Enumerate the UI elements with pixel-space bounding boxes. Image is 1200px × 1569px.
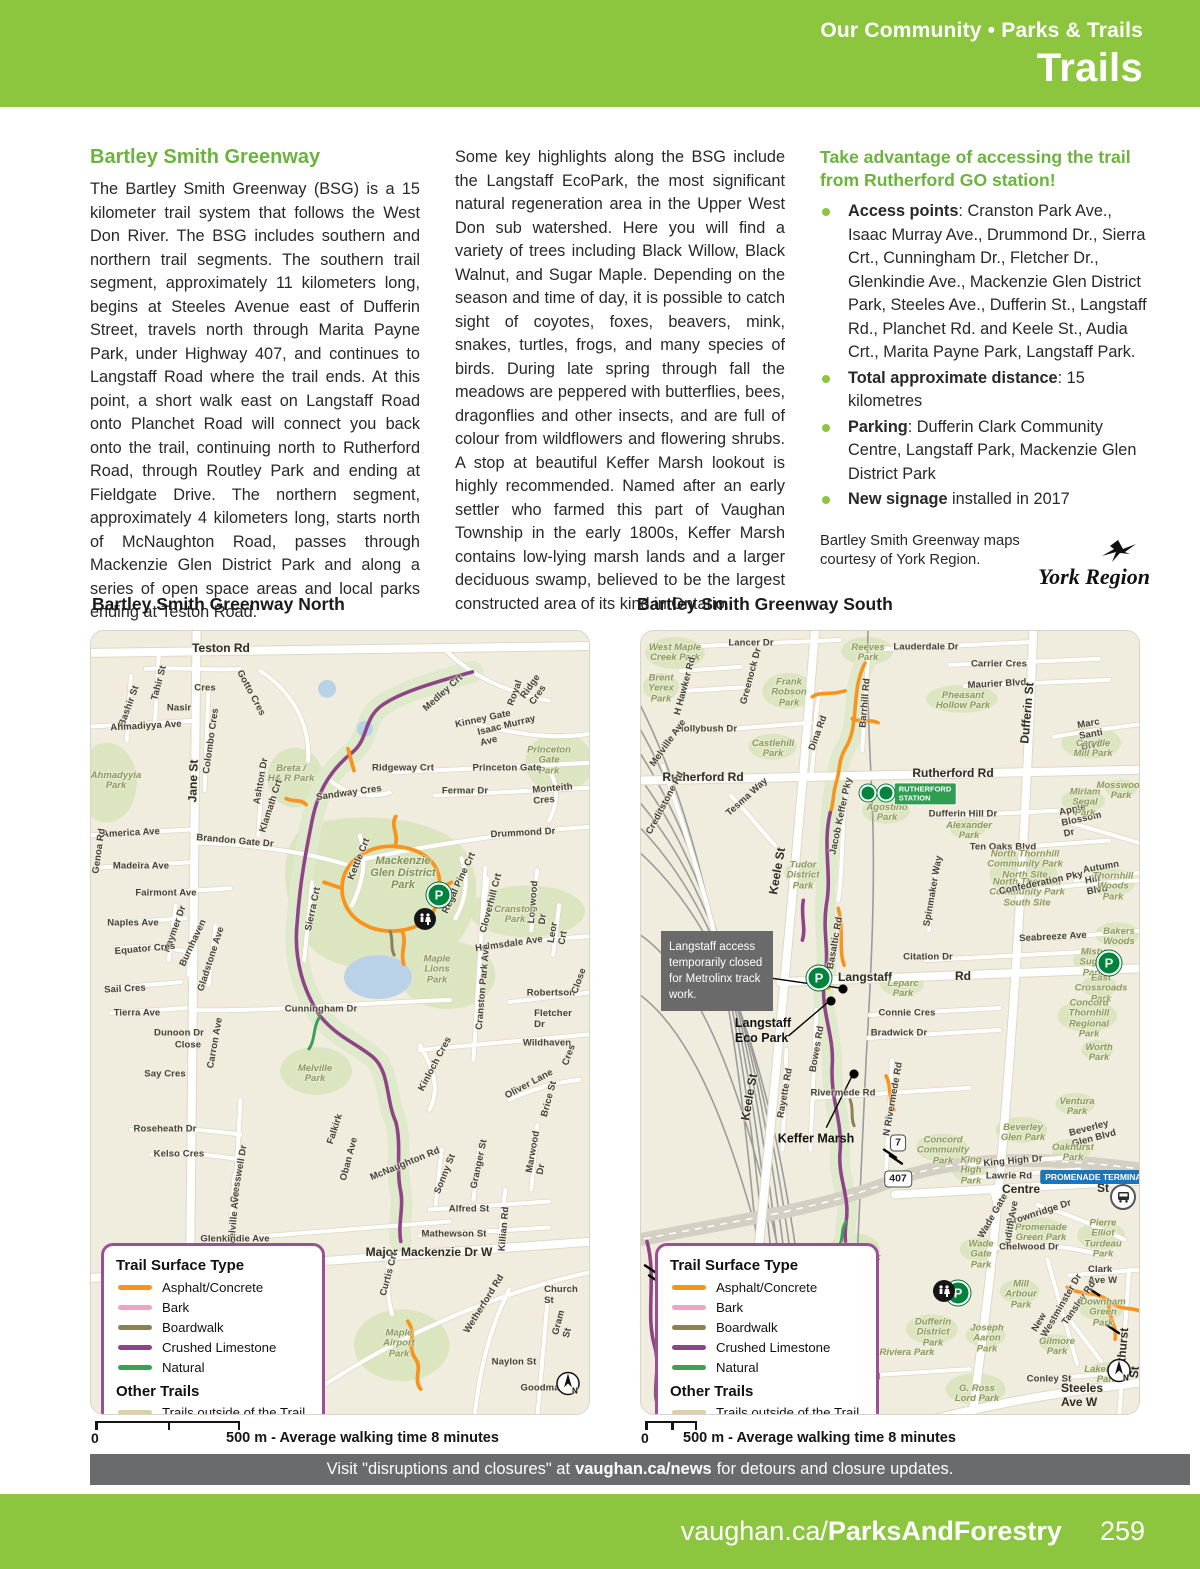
road-label: Granger St	[468, 1138, 489, 1189]
road-label: Naylon St	[492, 1357, 537, 1368]
road-label: Kinloch Cres	[416, 1035, 454, 1093]
road-label: Rivermede Rd	[810, 1088, 875, 1099]
road-label: Barrhill Rd	[857, 678, 872, 728]
scale-bar-south: 0 500 m - Average walking time 8 minutes	[645, 1421, 697, 1451]
road-label: Lawrie Rd	[986, 1171, 1032, 1182]
road-label: H Hawker Rd	[672, 656, 698, 717]
trail-swatch	[672, 1410, 706, 1415]
trail-swatch	[672, 1305, 706, 1310]
park-label: Brent Yerex Park	[648, 674, 674, 705]
page-header: Our Community • Parks & Trails Trails	[0, 0, 1200, 107]
trail-swatch	[118, 1365, 152, 1370]
road-label: Langstaff	[838, 970, 892, 984]
legend-title: Trail Surface Type	[670, 1257, 864, 1274]
park-label: Oakhurst Park	[1052, 1143, 1094, 1164]
page-number: 259	[1100, 1516, 1145, 1547]
park-label: Thornhill Woods Park	[1093, 872, 1134, 903]
park-label: Ahmadyyia Park	[91, 771, 142, 792]
road-label: Keele St	[766, 846, 788, 895]
north-compass-icon: N	[555, 1371, 581, 1402]
legend-north: Trail Surface Type Asphalt/Concrete Bark…	[101, 1243, 325, 1415]
svg-text:N: N	[1123, 1374, 1129, 1383]
credit-row: Bartley Smith Greenway maps courtesy of …	[820, 532, 1150, 602]
legend-other-title: Other Trails	[116, 1383, 310, 1400]
paragraph: The Bartley Smith Greenway (BSG) is a 15…	[90, 178, 420, 625]
road-label: Major Mackenzie Dr W	[366, 1245, 493, 1259]
road-label: Alfred St	[449, 1204, 490, 1215]
legend-item: Bark	[670, 1300, 864, 1316]
road-label: Cres	[194, 683, 216, 694]
road-label: Madeira Ave	[113, 861, 169, 872]
road-label: Monteith Cres	[532, 781, 574, 806]
road-label: Dunoon Dr	[154, 1028, 204, 1039]
road-label: King High Dr	[983, 1153, 1043, 1169]
road-label: Roseheath Dr	[134, 1124, 197, 1135]
page-title: Trails	[0, 46, 1143, 91]
scale-bracket	[95, 1421, 240, 1431]
bullet-item: Parking: Dufferin Clark Community Centre…	[820, 416, 1150, 487]
road-label: Citation Dr	[903, 952, 953, 963]
park-label: Cranston Park	[494, 905, 536, 926]
map-title-south: Bartley Smith Greenway South	[637, 594, 893, 615]
road-label: Gotto Cres	[234, 668, 267, 717]
park-label: Promenade Green Park	[1015, 1223, 1067, 1244]
road-label: Mathewson St	[421, 1229, 486, 1240]
road-label: Kettle Crt	[346, 837, 373, 882]
road-label: Medley Crt	[421, 672, 465, 713]
road-label: Cranston Park Ave	[474, 944, 492, 1031]
road-label: Marwood Dr	[524, 1122, 554, 1175]
road-label: Bradwick Dr	[871, 1028, 928, 1039]
site-url[interactable]: vaughan.ca/ParksAndForestry	[681, 1516, 1062, 1547]
news-link[interactable]: vaughan.ca/news	[575, 1460, 712, 1479]
bullet-item: Access points: Cranston Park Ave., Isaac…	[820, 200, 1150, 365]
trail-swatch	[118, 1305, 152, 1310]
transit-terminal-sign: PROMENADE TERMINAL	[1040, 1170, 1140, 1184]
road-label: Church St	[544, 1284, 578, 1306]
road-label: Falkirk	[325, 1112, 345, 1145]
legend-item: Asphalt/Concrete	[116, 1280, 310, 1296]
callout-label: Langstaff Eco Park	[735, 1016, 791, 1046]
svg-text:N: N	[572, 1387, 578, 1396]
road-label: Genoa Rd	[90, 828, 107, 875]
callout-heading: Take advantage of accessing the trail fr…	[820, 146, 1150, 192]
legend-item: Trails outside of the Trail System Focus	[116, 1405, 310, 1415]
road-label: Sail Cres	[104, 982, 146, 995]
road-label: Fletcher Dr	[534, 1008, 572, 1030]
trail-swatch	[118, 1345, 152, 1350]
road-label: Greenock Dr	[738, 647, 764, 706]
legend-item: Boardwalk	[116, 1320, 310, 1336]
road-label: Jane St	[185, 759, 200, 802]
legend-item: Natural	[116, 1360, 310, 1376]
legend-item: Bark	[116, 1300, 310, 1316]
legend-item: Crushed Limestone	[116, 1340, 310, 1356]
road-label: Spinmaker Way	[921, 855, 944, 928]
road-label: Keele St	[738, 1072, 760, 1121]
bus-stop-icon	[1110, 1184, 1136, 1210]
park-label: Maple Lions Park	[424, 955, 451, 986]
map-title-north: Bartley Smith Greenway North	[92, 594, 345, 615]
maps-credit: Bartley Smith Greenway maps courtesy of …	[820, 532, 1020, 570]
park-label: Downham Green Park	[1080, 1298, 1125, 1329]
go-station-sign: RUTHERFORD STATION	[894, 782, 957, 805]
road-label: Melville Ave	[648, 717, 688, 768]
road-label: Ridgeway Crt	[372, 763, 434, 774]
road-label: Rd	[955, 969, 971, 983]
park-label: Pierre Elliot Turdeau Park	[1084, 1219, 1121, 1260]
bullet-list: Access points: Cranston Park Ave., Isaac…	[820, 200, 1150, 512]
road-label: Ahmadiyya Ave	[110, 719, 182, 734]
scale-bar-north: 0 500 m - Average walking time 8 minutes	[95, 1421, 240, 1451]
road-label: Carron Ave	[205, 1017, 225, 1070]
trail-swatch	[672, 1285, 706, 1290]
trail-swatch	[672, 1325, 706, 1330]
park-label: Dufferin District Park	[915, 1318, 951, 1349]
park-label: Riviera Park	[880, 1348, 935, 1358]
road-label: Dina Rd	[807, 714, 830, 752]
map-north: Teston RdJane StTahir StBashir StNasirCr…	[90, 630, 590, 1415]
legend-south: Trail Surface Type Asphalt/Concrete Bark…	[655, 1243, 879, 1415]
parking-icon: P	[1097, 951, 1122, 976]
road-label: Nasir	[167, 703, 191, 714]
road-label: Sandway Cres	[315, 783, 382, 803]
road-label: Dufferin Hill Dr	[929, 809, 998, 820]
legend-item: Trails outside of the Trail System Focus	[670, 1405, 864, 1415]
notice-bar: Visit "disruptions and closures" at vaug…	[90, 1454, 1190, 1485]
road-label: Colombo Cres	[201, 707, 221, 774]
road-label: Close	[175, 1040, 201, 1051]
bullet-item: Total approximate distance: 15 kilometre…	[820, 367, 1150, 414]
road-label: Basaltic Rd	[825, 916, 845, 970]
washroom-icon	[414, 908, 436, 930]
park-label: King High Park	[960, 1156, 981, 1187]
park-label: Beverley Glen Park	[1001, 1123, 1045, 1144]
park-label: G. Ross Lord Park	[955, 1384, 999, 1405]
road-label: Wildhaven	[523, 1038, 571, 1049]
park-label: Mill Arbour Park	[1005, 1280, 1037, 1311]
legend-item: Natural	[670, 1360, 864, 1376]
park-label: Leparc Park	[887, 979, 918, 1000]
park-label: Concord Thornhill Regional Park	[1064, 999, 1114, 1040]
paragraph: Some key highlights along the BSG includ…	[455, 146, 785, 616]
road-label: Robertson	[527, 988, 575, 999]
road-label: Fermar Dr	[442, 786, 488, 797]
road-label: N Rivermede Rd	[881, 1061, 905, 1137]
road-label: McNaughton Rd	[369, 1145, 442, 1183]
park-label: Melville Park	[298, 1064, 332, 1085]
trail-swatch	[118, 1410, 152, 1415]
bullet-item: New signage installed in 2017	[820, 488, 1150, 512]
closure-point	[839, 985, 848, 994]
highway-shield: 407	[884, 1171, 912, 1188]
road-label: Lauderdale Dr	[893, 642, 958, 653]
trail-swatch	[118, 1325, 152, 1330]
road-label: Tierra Ave	[114, 1008, 161, 1019]
road-label: Gram St	[550, 1309, 578, 1339]
column-1: Bartley Smith Greenway The Bartley Smith…	[90, 146, 420, 625]
road-label: Bowes Rd	[808, 1025, 827, 1073]
legend-other-title: Other Trails	[670, 1383, 864, 1400]
road-label: America Ave	[102, 826, 160, 840]
column-3: Take advantage of accessing the trail fr…	[820, 146, 1150, 625]
parking-icon: P	[427, 883, 452, 908]
legend-title: Trail Surface Type	[116, 1257, 310, 1274]
road-label: Tahir St	[149, 664, 169, 701]
column-2: Some key highlights along the BSG includ…	[455, 146, 785, 625]
park-label: Castlehill Park	[752, 739, 794, 760]
park-label: Joseph Aaron Park	[970, 1324, 1003, 1355]
go-transit-logo	[860, 785, 895, 802]
road-label: Jacob Keffer Pky	[827, 776, 854, 855]
park-label: Worth Park	[1085, 1043, 1112, 1064]
park-label: Maple Airport Park	[383, 1329, 415, 1360]
road-label: Dufferin St	[1017, 682, 1036, 744]
road-label: Sierra Crt	[303, 886, 323, 932]
legend-item: Boardwalk	[670, 1320, 864, 1336]
road-label: Killian Rd	[497, 1206, 512, 1252]
road-label: Connie Cres	[878, 1008, 935, 1019]
york-region-star-icon	[1090, 540, 1146, 564]
road-label: Princeton Gate	[473, 763, 542, 774]
closure-point	[827, 997, 836, 1006]
washroom-icon	[933, 1280, 955, 1302]
road-label: Wetherford Rd	[462, 1273, 507, 1336]
park-label: Bakers Woods	[1103, 927, 1135, 948]
road-label: Lancer Dr	[728, 638, 773, 649]
legend-item: Crushed Limestone	[670, 1340, 864, 1356]
park-label: Ventura Park	[1059, 1097, 1094, 1118]
callout-label: Keffer Marsh	[778, 1132, 854, 1147]
road-label: Kelso Cres	[154, 1149, 205, 1160]
park-label: Tudor District Park	[787, 861, 820, 892]
park-label: Frank Robson Park	[771, 678, 806, 709]
park-label: Gilmore Park	[1039, 1337, 1075, 1358]
road-label: Brandon Gate Dr	[196, 832, 274, 850]
article-columns: Bartley Smith Greenway The Bartley Smith…	[90, 146, 1150, 625]
road-label: Naples Ave	[107, 918, 159, 929]
trail-swatch	[672, 1345, 706, 1350]
road-label: Cunningham Dr	[285, 1004, 358, 1015]
road-label: Leor Crt	[546, 912, 573, 945]
section-heading: Bartley Smith Greenway	[90, 146, 420, 169]
road-label: Close	[569, 967, 588, 996]
footer-bar: vaughan.ca/ParksAndForestry 259	[0, 1494, 1200, 1569]
road-label: Say Cres	[144, 1069, 185, 1080]
road-label: Rayette Rd	[775, 1067, 795, 1119]
trail-swatch	[118, 1285, 152, 1290]
road-label: Carrier Cres	[971, 659, 1027, 670]
road-label: Brice St	[539, 1080, 559, 1118]
map-south: Langstaff access temporarily closed for …	[640, 630, 1140, 1415]
road-label: Oban Ave	[338, 1136, 360, 1182]
park-label: Pheasant Hollow Park	[936, 691, 990, 712]
trail-swatch	[672, 1365, 706, 1370]
road-label: Seabreeze Ave	[1019, 930, 1087, 945]
road-label: Teston Rd	[192, 641, 250, 655]
parking-icon: P	[807, 966, 832, 991]
park-label: Agostino Park	[866, 803, 907, 824]
park-label: Alexander Park	[946, 821, 992, 842]
york-region-logo: York Region	[1020, 540, 1150, 590]
road-label: Rutherford Rd	[912, 766, 993, 780]
breadcrumb: Our Community • Parks & Trails	[0, 19, 1143, 43]
north-compass-icon: N	[1106, 1358, 1132, 1389]
park-label: Mosswood Park	[1096, 781, 1140, 802]
legend-item: Asphalt/Concrete	[670, 1280, 864, 1296]
road-label: Fairmont Ave	[135, 888, 196, 899]
closure-point	[850, 1070, 859, 1079]
park-label: Reeves Park	[851, 643, 884, 664]
road-label: Sonny St	[432, 1152, 458, 1195]
road-label: Chelwood Dr	[999, 1242, 1059, 1253]
road-label: Drummond Dr	[490, 826, 555, 840]
park-label: Wade Gate Park	[968, 1240, 993, 1271]
road-label: Ridge Cres	[518, 655, 564, 707]
road-label: Centre	[1002, 1182, 1040, 1196]
park-label: Carville Mill Park	[1073, 739, 1112, 760]
highway-shield: 7	[890, 1135, 906, 1152]
road-label: Equator Cres	[114, 941, 176, 957]
